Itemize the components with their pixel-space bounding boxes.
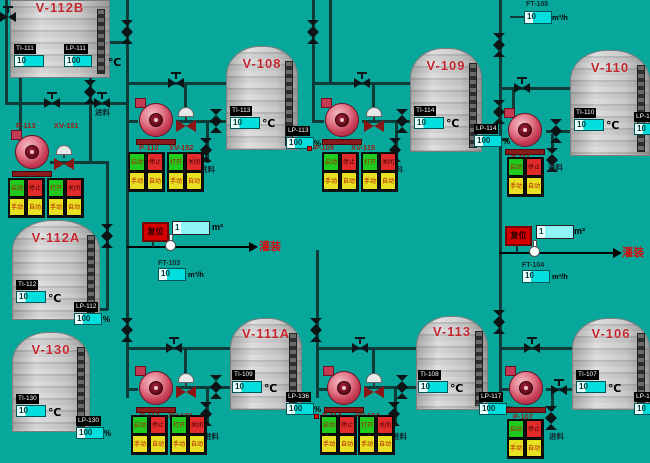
d-part bbox=[545, 424, 557, 430]
pump-stop-button[interactable]: 停止 bbox=[526, 158, 542, 176]
ti-value: 10 bbox=[574, 119, 604, 131]
flow-meter-value: 10 bbox=[158, 268, 186, 281]
ti-tag: TI-112 bbox=[16, 280, 38, 290]
tl-part bbox=[352, 343, 360, 353]
tr-part bbox=[52, 98, 60, 108]
pump-auto-button[interactable]: 自动 bbox=[339, 435, 355, 453]
ti-tag: TI-111 bbox=[14, 44, 36, 54]
transfer-destination-label: 灌装 bbox=[259, 238, 281, 254]
flow-meter-value: 10 bbox=[522, 270, 550, 283]
check-valve-icon[interactable] bbox=[396, 109, 408, 133]
pump-p-109[interactable] bbox=[322, 100, 364, 146]
pump-start-button[interactable]: 启动 bbox=[508, 158, 524, 176]
ti-tag: TI-130 bbox=[16, 394, 39, 404]
control-valve-icon[interactable] bbox=[364, 373, 384, 398]
pipe bbox=[5, 102, 129, 105]
pump-stop-button[interactable]: 停止 bbox=[150, 416, 166, 434]
ti-value: 10 bbox=[418, 381, 448, 393]
pump-p-110[interactable] bbox=[136, 100, 178, 146]
celsius-unit: ℃ bbox=[262, 117, 275, 130]
valve-start-button[interactable]: 打开 bbox=[359, 416, 375, 434]
d-part bbox=[493, 328, 505, 334]
pump-control-panel: 启动停止手动自动 bbox=[320, 415, 357, 455]
pump-start-button[interactable]: 启动 bbox=[9, 179, 25, 197]
d-part bbox=[101, 242, 113, 248]
d-part bbox=[310, 336, 322, 342]
feed-label: 进料 bbox=[95, 107, 110, 118]
percent-unit: % bbox=[104, 429, 111, 438]
tl-part bbox=[166, 343, 174, 353]
ti-tag: TI-114 bbox=[414, 106, 436, 116]
d-part bbox=[210, 393, 222, 399]
celsius-unit: ℃ bbox=[446, 117, 459, 130]
d-part bbox=[121, 336, 133, 342]
d-part bbox=[493, 118, 505, 124]
valve-stop-button[interactable]: 关闭 bbox=[66, 179, 82, 197]
pump-control-panel: 启动停止手动自动 bbox=[8, 178, 45, 218]
pump-p-111[interactable] bbox=[505, 110, 547, 156]
check-valve-icon[interactable] bbox=[307, 20, 319, 44]
pump-control-panel: 启动停止手动自动 bbox=[507, 157, 544, 197]
pump-p-114[interactable] bbox=[324, 368, 366, 414]
pipe bbox=[329, 0, 332, 84]
flow-meter-unit: m³/h bbox=[188, 270, 204, 279]
valve-manual-button[interactable]: 手动 bbox=[168, 172, 184, 190]
tl-part bbox=[354, 78, 362, 88]
tl-part bbox=[524, 343, 532, 353]
tr-part bbox=[362, 78, 370, 88]
pipe bbox=[184, 84, 187, 109]
dot-part bbox=[342, 386, 346, 390]
pump-manual-button[interactable]: 手动 bbox=[508, 177, 524, 195]
check-valve-icon[interactable] bbox=[84, 80, 96, 104]
pipe bbox=[152, 242, 154, 247]
pump-auto-button[interactable]: 自动 bbox=[526, 439, 542, 457]
pump-stop-button[interactable]: 停止 bbox=[526, 420, 542, 438]
ti-tag: TI-110 bbox=[574, 108, 596, 118]
ti-tag: TI-107 bbox=[576, 370, 599, 380]
tl-part bbox=[54, 158, 64, 170]
tl-part bbox=[551, 385, 559, 395]
flow-meter-unit: m³/h bbox=[552, 272, 568, 281]
gate-valve-icon[interactable] bbox=[0, 6, 16, 22]
tr-part bbox=[186, 120, 196, 132]
check-valve-icon[interactable] bbox=[550, 119, 562, 143]
celsius-unit: ℃ bbox=[48, 406, 61, 419]
pipe bbox=[516, 246, 518, 253]
transfer-destination-label: 灌装 bbox=[622, 244, 644, 260]
d-part bbox=[396, 393, 408, 399]
lp-tag: LP-1 bbox=[634, 112, 650, 122]
totalizer-value: 1 bbox=[172, 221, 210, 235]
equipment-tag-label: P-109 bbox=[314, 143, 334, 152]
pump-auto-button[interactable]: 自动 bbox=[150, 435, 166, 453]
pump-manual-button[interactable]: 手动 bbox=[508, 439, 524, 457]
tl-part bbox=[364, 386, 374, 398]
check-valve-icon[interactable] bbox=[121, 20, 133, 44]
pipe bbox=[510, 16, 524, 18]
dot-part bbox=[524, 386, 528, 390]
lp-tag: LP-1 bbox=[634, 392, 650, 402]
dot-part bbox=[340, 118, 344, 122]
hmi-process-screen: 灌装灌装V-112BTI-11110℃LP-111100V-108TI-1131… bbox=[0, 0, 650, 463]
ti-value: 10 bbox=[16, 291, 46, 303]
tr-part bbox=[374, 386, 384, 398]
valve-stop-button[interactable]: 关闭 bbox=[377, 416, 393, 434]
valve-manual-button[interactable]: 手动 bbox=[359, 435, 375, 453]
pipe bbox=[499, 0, 502, 400]
lp-value: 10 bbox=[634, 123, 650, 135]
check-valve-icon[interactable] bbox=[493, 33, 505, 57]
pump-manual-button[interactable]: 手动 bbox=[323, 172, 339, 190]
tr-part bbox=[374, 120, 384, 132]
d-part bbox=[121, 38, 133, 44]
valve-start-button[interactable]: 打开 bbox=[48, 179, 64, 197]
lp-tag: LP-112 bbox=[74, 302, 98, 312]
d-part bbox=[396, 127, 408, 133]
dot-part bbox=[30, 150, 34, 154]
pipe bbox=[372, 84, 375, 109]
valve-auto-button[interactable]: 自动 bbox=[380, 172, 396, 190]
pump-auto-button[interactable]: 自动 bbox=[27, 198, 43, 216]
valve-auto-button[interactable]: 自动 bbox=[186, 172, 202, 190]
pump-manual-button[interactable]: 手动 bbox=[132, 435, 148, 453]
pump-start-button[interactable]: 启动 bbox=[323, 153, 339, 171]
pump-p-107[interactable] bbox=[506, 368, 548, 414]
d-part bbox=[550, 137, 562, 143]
tl-part bbox=[364, 120, 374, 132]
tl-part bbox=[176, 120, 186, 132]
arrow-head-icon bbox=[613, 248, 622, 258]
pump-control-panel: 启动停止手动自动 bbox=[507, 419, 544, 459]
base-part bbox=[12, 171, 52, 177]
lp-tag: LP-113 bbox=[286, 126, 310, 136]
ti-value: 10 bbox=[14, 55, 44, 67]
arrow-head-icon bbox=[249, 242, 258, 252]
equipment-tag-label: XV-152 bbox=[169, 143, 194, 152]
check-valve-icon[interactable] bbox=[493, 100, 505, 124]
lp-value: 100 bbox=[74, 313, 102, 325]
gate-valve-icon[interactable] bbox=[168, 72, 184, 88]
pump-control-panel: 启动停止手动自动 bbox=[128, 152, 165, 192]
flow-meter-tag: FT-103 bbox=[158, 260, 180, 267]
check-valve-icon[interactable] bbox=[101, 224, 113, 248]
gate-valve-icon[interactable] bbox=[354, 72, 370, 88]
cap-part bbox=[366, 107, 382, 117]
flow-sensor-icon bbox=[529, 240, 541, 258]
control-valve-icon[interactable] bbox=[364, 107, 384, 132]
tank-name-label: V-112B bbox=[11, 0, 109, 15]
pump-p-112[interactable] bbox=[136, 368, 178, 414]
d-part bbox=[493, 51, 505, 57]
dot-part bbox=[523, 128, 527, 132]
tank-v-109: V-109 bbox=[410, 48, 482, 152]
celsius-unit: ℃ bbox=[606, 119, 619, 132]
flow-meter-tag: FT-105 bbox=[526, 1, 548, 8]
control-valve-icon[interactable] bbox=[176, 107, 196, 132]
pump-start-button[interactable]: 启动 bbox=[508, 420, 524, 438]
ti-tag: TI-113 bbox=[230, 106, 252, 116]
tr-part bbox=[8, 12, 16, 22]
gate-valve-icon[interactable] bbox=[352, 337, 368, 353]
equipment-tag-label: XV-151 bbox=[54, 121, 79, 130]
pump-start-button[interactable]: 启动 bbox=[132, 416, 148, 434]
celsius-unit: ℃ bbox=[450, 382, 463, 395]
lp-tag: LP-117 bbox=[479, 392, 503, 402]
cap-part bbox=[178, 373, 194, 383]
gate-valve-icon[interactable] bbox=[44, 92, 60, 108]
tr-part bbox=[360, 343, 368, 353]
flow-meter-unit: m³/h bbox=[552, 13, 568, 22]
valve-start-button[interactable]: 打开 bbox=[168, 153, 184, 171]
cap-part bbox=[178, 107, 194, 117]
check-valve-icon[interactable] bbox=[493, 310, 505, 334]
gate-valve-icon[interactable] bbox=[524, 337, 540, 353]
lp-tag: LP-130 bbox=[76, 416, 101, 426]
pump-auto-button[interactable]: 自动 bbox=[526, 177, 542, 195]
check-valve-icon[interactable] bbox=[121, 318, 133, 342]
lp-value: 100 bbox=[474, 135, 502, 147]
pipe bbox=[372, 349, 375, 375]
tl-part bbox=[0, 12, 8, 22]
ti-value: 10 bbox=[576, 381, 606, 393]
tank-v-113: V-113 bbox=[416, 316, 488, 410]
tr-part bbox=[176, 78, 184, 88]
ti-value: 10 bbox=[232, 381, 262, 393]
check-valve-icon[interactable] bbox=[545, 406, 557, 430]
level-gauge-column bbox=[637, 65, 645, 152]
celsius-unit: ℃ bbox=[108, 56, 121, 69]
ti-value: 10 bbox=[414, 117, 444, 129]
pump-stop-button[interactable]: 停止 bbox=[339, 416, 355, 434]
pump-manual-button[interactable]: 手动 bbox=[129, 172, 145, 190]
percent-unit: % bbox=[103, 315, 110, 324]
transfer-line bbox=[127, 246, 249, 248]
tr-part bbox=[64, 158, 74, 170]
gate-valve-icon[interactable] bbox=[94, 92, 110, 108]
control-valve-icon[interactable] bbox=[176, 373, 196, 398]
valve-start-button[interactable]: 打开 bbox=[171, 416, 187, 434]
valve-stop-button[interactable]: 关闭 bbox=[380, 153, 396, 171]
ti-tag: TI-108 bbox=[418, 370, 441, 380]
lp-tag: LP-111 bbox=[64, 44, 88, 54]
pump-control-panel: 启动停止手动自动 bbox=[322, 152, 359, 192]
flow-meter-value: 10 bbox=[524, 11, 552, 24]
check-valve-icon[interactable] bbox=[210, 109, 222, 133]
d-part bbox=[210, 127, 222, 133]
ti-value: 10 bbox=[230, 117, 260, 129]
valve-manual-button[interactable]: 手动 bbox=[171, 435, 187, 453]
check-valve-icon[interactable] bbox=[396, 375, 408, 399]
check-valve-icon[interactable] bbox=[310, 318, 322, 342]
cap-part bbox=[366, 373, 382, 383]
dot-part bbox=[154, 118, 158, 122]
valve-control-panel: 打开关闭手动自动 bbox=[361, 152, 398, 192]
totalizer-unit: m³ bbox=[212, 222, 223, 232]
tl-part bbox=[176, 386, 186, 398]
tr-part bbox=[559, 385, 567, 395]
valve-stop-button[interactable]: 关闭 bbox=[186, 153, 202, 171]
tr-part bbox=[174, 343, 182, 353]
tank-v-110: V-110 bbox=[570, 50, 650, 156]
pump-auto-button[interactable]: 自动 bbox=[341, 172, 357, 190]
valve-control-panel: 打开关闭手动自动 bbox=[358, 415, 395, 455]
pipe bbox=[312, 84, 315, 122]
pump-auto-button[interactable]: 自动 bbox=[147, 172, 163, 190]
tl-part bbox=[44, 98, 52, 108]
gate-valve-icon[interactable] bbox=[551, 379, 567, 395]
ti-tag: TI-109 bbox=[232, 370, 255, 380]
flow-sensor-icon bbox=[165, 234, 177, 252]
totalizer-unit: m³ bbox=[574, 226, 585, 236]
celsius-unit: ℃ bbox=[48, 292, 61, 305]
tr-part bbox=[522, 83, 530, 93]
run-status-indicator bbox=[314, 414, 319, 419]
ball-part bbox=[529, 246, 540, 257]
valve-auto-button[interactable]: 自动 bbox=[189, 435, 205, 453]
pump-stop-button[interactable]: 停止 bbox=[341, 153, 357, 171]
pump-manual-button[interactable]: 手动 bbox=[321, 435, 337, 453]
equipment-tag-label: P-110 bbox=[139, 143, 159, 152]
pump-start-button[interactable]: 启动 bbox=[129, 153, 145, 171]
valve-auto-button[interactable]: 自动 bbox=[66, 198, 82, 216]
percent-unit: % bbox=[314, 405, 321, 414]
pipe bbox=[499, 87, 573, 90]
valve-control-panel: 打开关闭手动自动 bbox=[170, 415, 207, 455]
pump-control-panel: 启动停止手动自动 bbox=[131, 415, 168, 455]
d-part bbox=[307, 38, 319, 44]
tl-part bbox=[514, 83, 522, 93]
tl-part bbox=[168, 78, 176, 88]
valve-start-button[interactable]: 打开 bbox=[362, 153, 378, 171]
lp-tag: LP-136 bbox=[286, 392, 311, 402]
pump-p-113[interactable] bbox=[12, 132, 54, 178]
lp-value: 100 bbox=[76, 427, 104, 439]
ball-part bbox=[165, 240, 176, 251]
valve-manual-button[interactable]: 手动 bbox=[48, 198, 64, 216]
valve-manual-button[interactable]: 手动 bbox=[362, 172, 378, 190]
lp-value: 100 bbox=[479, 403, 507, 415]
lp-tag: LP-114 bbox=[474, 124, 498, 134]
valve-stop-button[interactable]: 关闭 bbox=[189, 416, 205, 434]
feed-label: 进料 bbox=[548, 162, 563, 173]
gate-valve-icon[interactable] bbox=[166, 337, 182, 353]
pipe bbox=[184, 349, 187, 375]
valve-auto-button[interactable]: 自动 bbox=[377, 435, 393, 453]
gate-valve-icon[interactable] bbox=[514, 77, 530, 93]
ti-value: 10 bbox=[16, 405, 46, 417]
lp-value: 100 bbox=[64, 55, 92, 67]
equipment-tag-label: XV-115 bbox=[351, 143, 375, 152]
tr-part bbox=[532, 343, 540, 353]
lp-value: 100 bbox=[286, 403, 314, 415]
tr-part bbox=[186, 386, 196, 398]
totalizer-value: 1 bbox=[536, 225, 574, 239]
dot-part bbox=[154, 386, 158, 390]
flow-meter-tag: FT-104 bbox=[522, 262, 544, 269]
control-valve-icon[interactable] bbox=[54, 145, 74, 170]
lp-value: 10 bbox=[634, 403, 650, 415]
pump-start-button[interactable]: 启动 bbox=[321, 416, 337, 434]
d-part bbox=[84, 98, 96, 104]
pump-stop-button[interactable]: 停止 bbox=[27, 179, 43, 197]
celsius-unit: ℃ bbox=[264, 382, 277, 395]
pump-stop-button[interactable]: 停止 bbox=[147, 153, 163, 171]
check-valve-icon[interactable] bbox=[210, 375, 222, 399]
cap-part bbox=[56, 145, 72, 155]
equipment-tag-label: P-113 bbox=[16, 121, 36, 130]
pump-manual-button[interactable]: 手动 bbox=[9, 198, 25, 216]
reset-button[interactable]: 复位 bbox=[505, 226, 532, 246]
run-status-indicator bbox=[307, 146, 312, 151]
feed-label: 进料 bbox=[549, 431, 564, 442]
valve-control-panel: 打开关闭手动自动 bbox=[47, 178, 84, 218]
valve-control-panel: 打开关闭手动自动 bbox=[167, 152, 204, 192]
celsius-unit: ℃ bbox=[608, 382, 621, 395]
level-gauge-column bbox=[97, 9, 105, 74]
